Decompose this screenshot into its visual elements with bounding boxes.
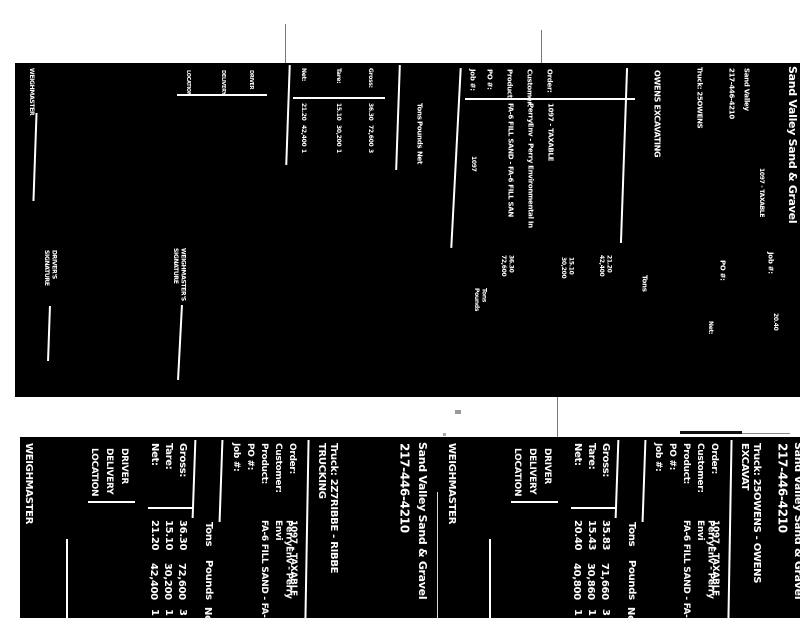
pounds-header: Pounds (415, 121, 423, 148)
gross-extra: 3 (599, 609, 611, 616)
tons-header: Tons (625, 522, 637, 546)
tare-label: Tare: (585, 443, 597, 470)
job-label-2: Job #: (766, 252, 774, 274)
weighmasters-signature-label: WEIGHMASTER'S SIGNATURE (172, 248, 186, 301)
signature-line (47, 306, 51, 361)
truck-owner: OWENS EXCAVATING (652, 70, 662, 157)
net-value-text: 20.40 (772, 313, 779, 330)
net-text: Net: (707, 321, 714, 334)
pounds-header: Pounds (202, 560, 214, 600)
delivery-label: DELIVERY (220, 70, 226, 95)
po-label: PO #: (666, 443, 677, 470)
net-tons: 21.20 (300, 103, 307, 120)
tare-pounds: 30,200 (161, 563, 173, 600)
section-rule (304, 440, 309, 618)
signature-line (66, 539, 68, 618)
tare-pounds: 30,200 (335, 125, 342, 146)
scan-streak (541, 30, 542, 63)
table-rule (571, 507, 615, 509)
location-label: LOCATION (185, 70, 191, 96)
section-rule (450, 68, 461, 248)
table-rule (148, 507, 192, 509)
scan-speck (455, 410, 461, 414)
job-label: Job #: (230, 443, 241, 471)
tare-pounds: 30,860 (584, 563, 596, 600)
tare-extra: 1 (162, 609, 174, 616)
tons-header: Tons (202, 522, 214, 546)
scanned-weigh-ticket-page: WEIGHMASTER DRIVER'S SIGNATURE WEIGHMAST… (0, 0, 800, 618)
signature-line (489, 539, 491, 618)
net-pounds: 42,400 (147, 563, 159, 600)
customer-value: PerryEnv - Perry Envi (694, 520, 716, 618)
order-value: 1097 - TAXABLE (546, 103, 554, 161)
scan-speck (443, 433, 446, 436)
net-tons: 21.20 (148, 520, 160, 550)
net-header-partial: Net (201, 607, 213, 618)
gross-pounds: 72,600 (175, 563, 187, 600)
gross-tons: 35.83 (599, 520, 611, 550)
gross-label: Gross: (599, 443, 611, 477)
company-name: Sand Valley (742, 68, 750, 111)
scan-streak (557, 397, 558, 437)
tare-block: 15.10 30,200 (560, 257, 574, 278)
scan-streak (285, 24, 286, 63)
table-rule (293, 97, 385, 99)
section-rule (620, 68, 628, 243)
product-value: FA-6 FILL SAND - FA-6 FILL SAN (506, 103, 514, 217)
units-block: Tons Pounds (473, 288, 487, 311)
gross-tons: 36.30 (176, 520, 188, 550)
table-rule (615, 440, 620, 518)
gross-label: Gross: (367, 68, 374, 88)
top-ticket-region: WEIGHMASTER DRIVER'S SIGNATURE WEIGHMAST… (15, 63, 800, 397)
scan-dash (742, 433, 790, 434)
driver-label: DRIVER (248, 70, 254, 89)
table-rule (642, 440, 647, 522)
driver-label: DRIVER (118, 448, 129, 484)
table-rule (219, 440, 224, 522)
net-extra: 1 (571, 609, 583, 616)
gross-extra: 3 (176, 609, 188, 616)
pounds-header: Pounds (625, 560, 637, 600)
field-rule (465, 98, 635, 100)
tons-header: Tons (415, 103, 423, 120)
signature-line (32, 113, 37, 201)
net-extra: 1 (148, 609, 160, 616)
delivery-label: DELIVERY (526, 448, 537, 494)
po-label: PO #: (485, 69, 493, 90)
net-header: Net (415, 151, 423, 164)
customer-value: PerryEnv - Perry Envi (272, 520, 294, 618)
net-label: Net: (148, 443, 160, 466)
field-rule (88, 501, 135, 503)
ticket-divider (437, 492, 438, 618)
gross-pounds: 71,660 (598, 563, 610, 600)
job-value: 1097 (470, 156, 477, 172)
gross-pounds: 72,600 (367, 125, 374, 146)
delivery-label: DELIVERY (103, 448, 114, 494)
gross-block: 36.30 72,600 (500, 255, 514, 276)
tons-text: Tons (640, 275, 648, 292)
phone: 217-446-4210 (397, 443, 411, 533)
truck-line: Truck: 25OWENS (695, 67, 703, 128)
net-block: 21.20 42,400 (598, 255, 612, 276)
truck-line: Truck: 25OWENS - OWENS EXCAVAT (738, 443, 762, 618)
weighmaster-label: WEIGHMASTER (445, 443, 457, 524)
product-label: Product: (680, 443, 691, 484)
job-label: Job #: (468, 69, 476, 91)
location-label: LOCATION (88, 448, 99, 496)
net-tons: 20.40 (571, 520, 583, 550)
product-value: FA-6 FILL SAND - FA- (680, 520, 691, 618)
table-rule (395, 65, 401, 170)
company-name-clipped: Sand Valley Sand & Gravel (792, 442, 800, 599)
location-label: LOCATION (511, 448, 522, 496)
gross-label: Gross: (176, 443, 188, 477)
product-label: Product: (505, 69, 513, 100)
tare-label: Tare: (335, 68, 342, 83)
ref-value: 1097 - TAXABLE (758, 168, 765, 217)
net-pounds: 42,400 (300, 125, 307, 146)
tare-tons: 15.43 (585, 520, 597, 550)
gross-tons: 36.30 (367, 103, 374, 120)
table-rule (285, 65, 290, 165)
net-pounds: 40,800 (570, 563, 582, 600)
phone: 217-446-4210 (775, 443, 789, 533)
signature-line (177, 305, 183, 380)
net-header-partial: Net (624, 607, 636, 618)
order-label: Order: (286, 443, 297, 474)
po-label: PO #: (244, 443, 255, 470)
order-label: Order: (545, 69, 553, 93)
table-rule (192, 440, 197, 518)
tare-tons: 15.10 (335, 103, 342, 120)
field-rule (511, 501, 558, 503)
product-label: Product: (258, 443, 269, 484)
weighmaster-label: WEIGHMASTER (28, 68, 35, 115)
customer-label: Customer: (525, 69, 533, 107)
net-extra: 1 (300, 149, 307, 153)
net-label: Net: (300, 68, 307, 81)
customer-value: PerryEnv - Perry Environmental In (526, 103, 534, 228)
field-rule (177, 94, 267, 96)
section-rule (727, 440, 732, 618)
company-name-clipped: Sand Valley Sand & Gravel (786, 66, 799, 223)
job-label: Job #: (652, 443, 663, 471)
customer-label: Customer: (272, 443, 283, 493)
scan-dash (680, 431, 742, 434)
product-value: FA-6 FILL SAND - FA- (258, 520, 269, 618)
company-name: Sand Valley Sand & Gravel (416, 442, 429, 599)
po-label-2: PO #: (718, 260, 726, 281)
gross-extra: 3 (367, 149, 374, 153)
weighmaster-label: WEIGHMASTER (22, 443, 34, 524)
customer-label: Customer: (694, 443, 705, 493)
order-label: Order: (708, 443, 719, 474)
net-label: Net: (571, 443, 583, 466)
bottom-tickets-region: WEIGHMASTER LOCATION DELIVERY DRIVER Net… (20, 437, 800, 618)
truck-line: Truck: 2Z7RIBBE - RIBBE TRUCKING (315, 443, 339, 618)
phone: 217-446-4210 (727, 68, 735, 119)
tare-extra: 1 (585, 609, 597, 616)
driver-label: DRIVER (541, 448, 552, 484)
tare-tons: 15.10 (162, 520, 174, 550)
drivers-signature-label: DRIVER'S SIGNATURE (43, 250, 57, 286)
tare-extra: 1 (335, 149, 342, 153)
tare-label: Tare: (162, 443, 174, 470)
